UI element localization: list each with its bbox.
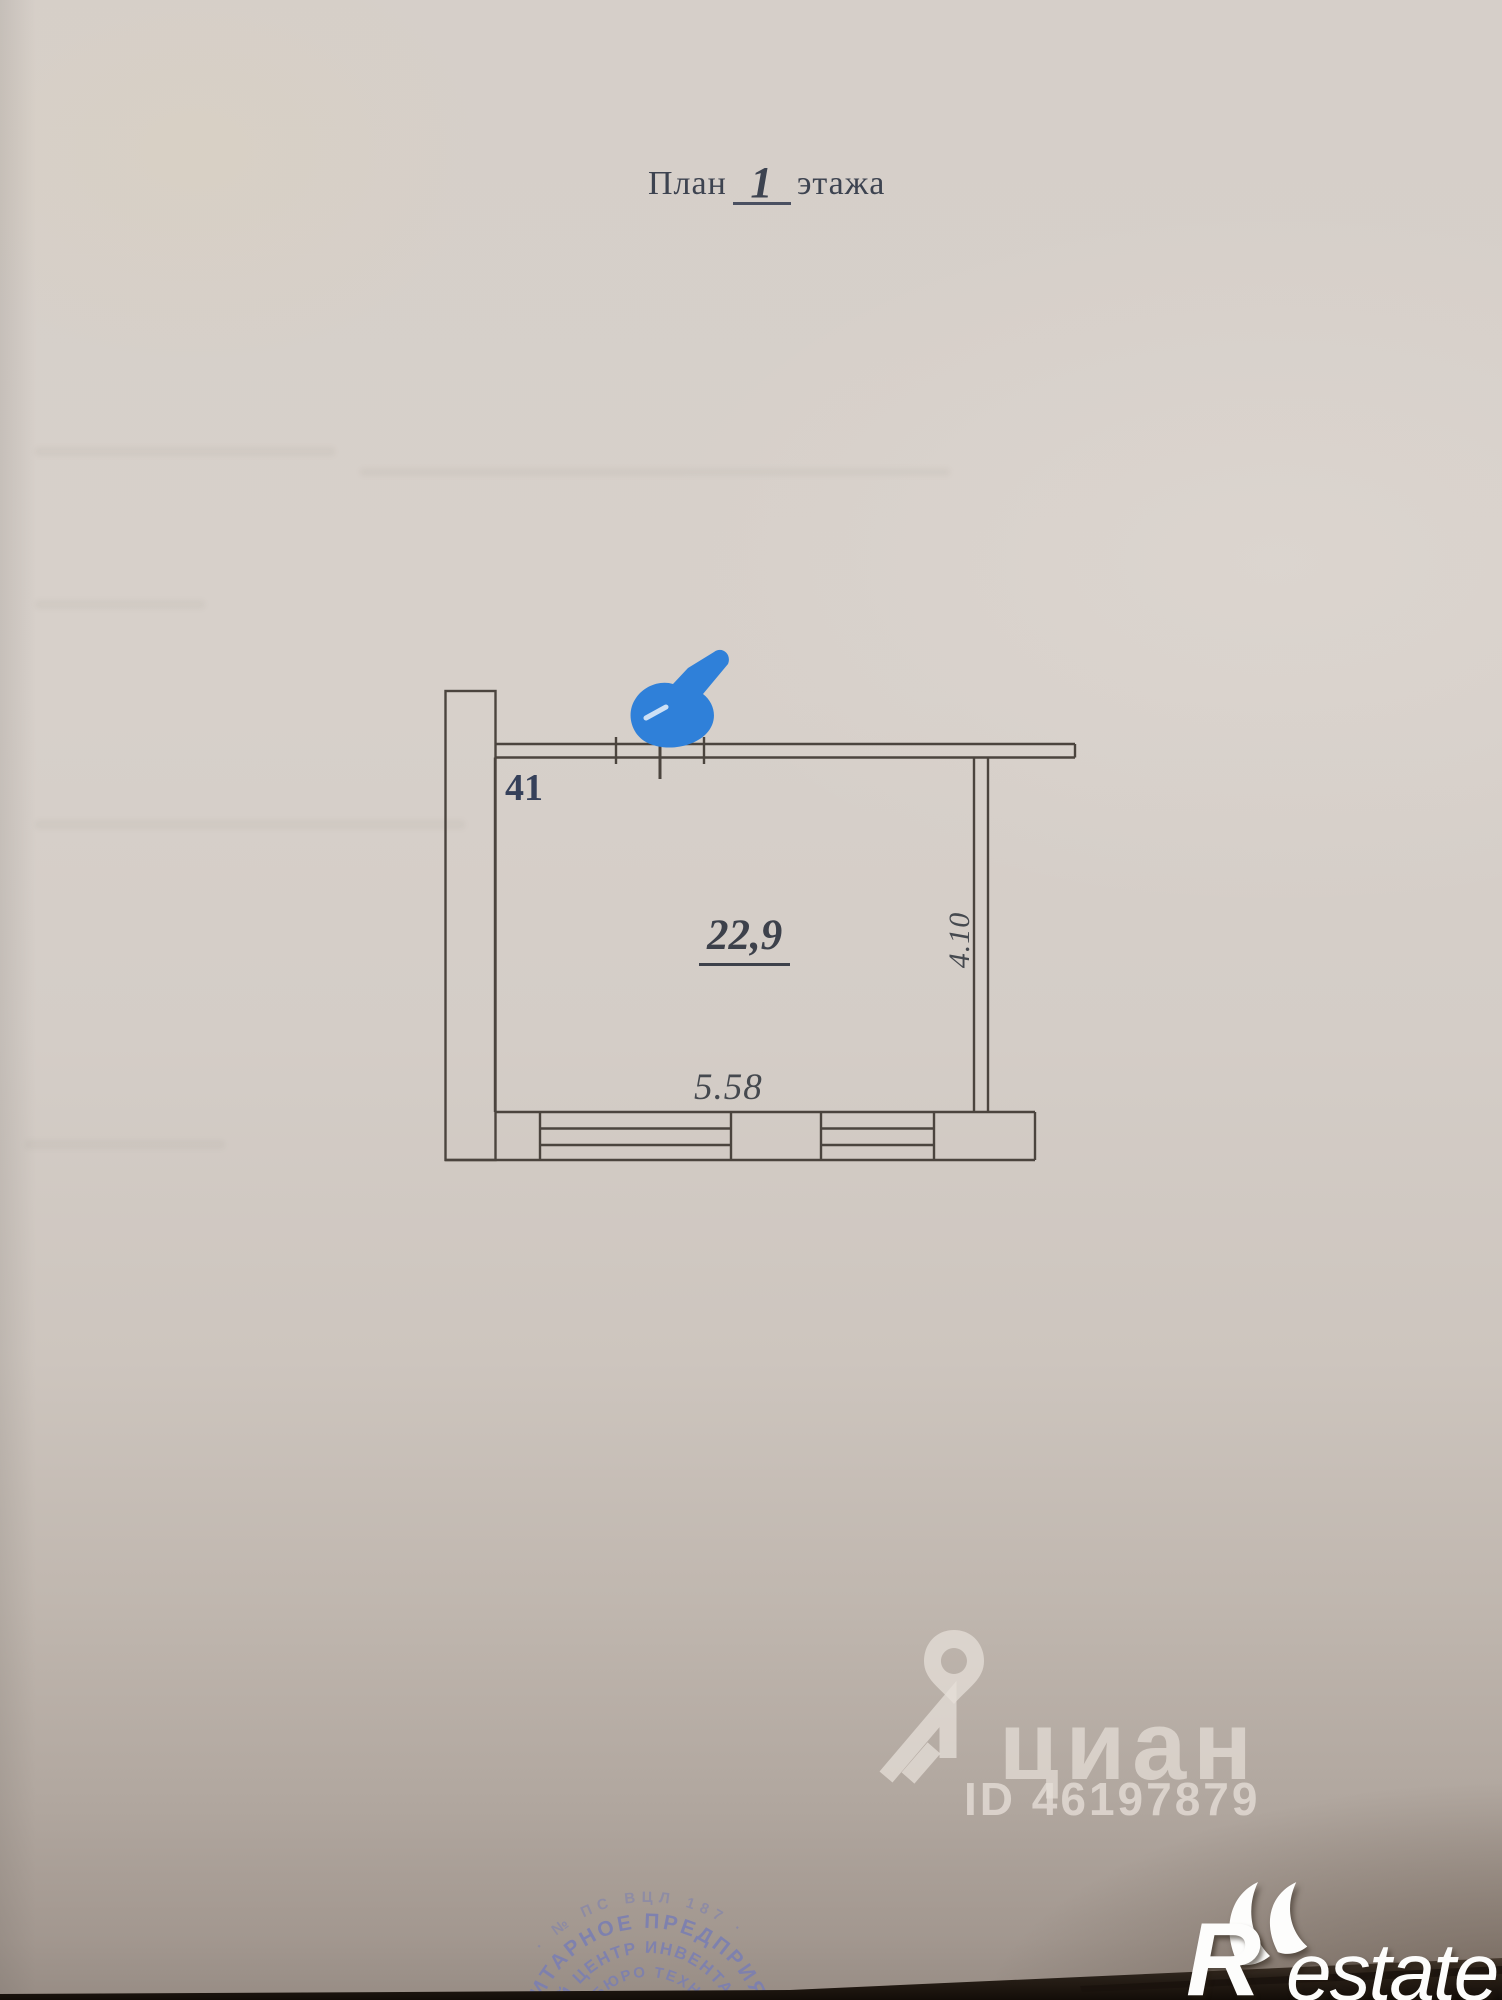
stamp-ring4-text: ИЗАЦИЯ — [609, 1985, 680, 2000]
stamp-ring1-text: УНИТАРНОЕ ПРЕДПРИЯТ — [509, 1901, 777, 2000]
stamp-outer-ring-text: · № ПС ВЦЛ 187 · — [529, 1882, 750, 1955]
floor-plan-drawing — [0, 0, 1502, 2000]
room-width-dimension: 5.58 — [694, 1066, 763, 1109]
room-depth-dimension: 4.10 — [923, 898, 997, 982]
page-title: План 1 этажа — [648, 158, 885, 205]
bti-round-stamp: · № ПС ВЦЛ 187 · УНИТАРНОЕ ПРЕДПРИЯТ ЧНЫ… — [0, 0, 1502, 2000]
paper-smudge — [35, 600, 205, 609]
paper-smudge — [25, 1140, 225, 1149]
room-number-label: 41 — [505, 766, 543, 810]
room-area-label: 22,9 — [699, 911, 790, 966]
map-pin-icon — [924, 1630, 984, 1704]
paper-smudge — [35, 820, 465, 829]
stamp-ring2-text: ЧНЫЙ ЦЕНТР ИНВЕНТАРИЗ — [537, 1931, 752, 2000]
listing-id-watermark: ID 46197879 — [964, 1772, 1260, 1826]
walking-person-icon — [886, 1704, 948, 1778]
left-pillar — [446, 691, 496, 1160]
paper-smudge — [360, 468, 950, 476]
floor-number: 1 — [750, 158, 773, 207]
restate-wordmark: estate — [1286, 1932, 1497, 2000]
restate-initial: R — [1186, 1908, 1261, 2000]
title-prefix: План — [648, 164, 727, 205]
bottom-right-shadow — [0, 0, 1502, 2000]
bottom-dark-band — [0, 0, 1502, 2000]
title-suffix: этажа — [797, 164, 886, 205]
scanned-floor-plan-page: План 1 этажа — [0, 0, 1502, 2000]
cian-watermark-mark — [0, 0, 1502, 2000]
restate-logo: R estate — [1178, 1880, 1502, 2000]
blue-marker-arrow — [631, 650, 729, 748]
stamp-text-rings: · № ПС ВЦЛ 187 · УНИТАРНОЕ ПРЕДПРИЯТ ЧНЫ… — [507, 1880, 778, 2000]
paper-smudge — [35, 447, 335, 456]
floor-number-slot: 1 — [733, 158, 791, 205]
page-edge-shadow — [0, 0, 36, 2000]
marker-arrow-body — [631, 650, 729, 748]
stamp-ring3-text: ОЕ БЮРО ТЕХНИЧ — [568, 1959, 721, 2000]
marker-arrow-highlight — [646, 707, 666, 718]
